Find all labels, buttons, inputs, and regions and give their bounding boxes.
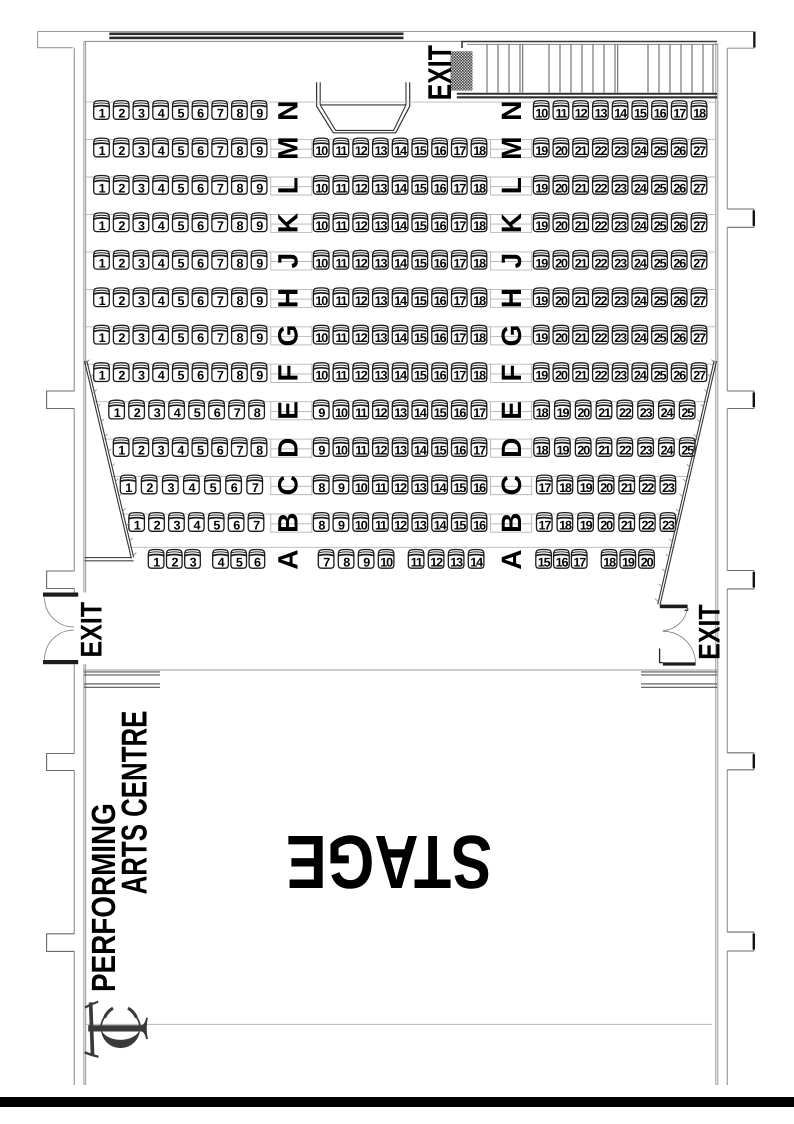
svg-text:18: 18 bbox=[603, 555, 616, 569]
svg-text:18: 18 bbox=[473, 294, 486, 308]
svg-text:14: 14 bbox=[394, 219, 407, 233]
svg-text:16: 16 bbox=[434, 331, 447, 345]
svg-text:17: 17 bbox=[473, 406, 486, 420]
svg-text:22: 22 bbox=[595, 219, 608, 233]
svg-text:E: E bbox=[496, 401, 527, 420]
svg-text:10: 10 bbox=[315, 331, 328, 345]
svg-text:15: 15 bbox=[414, 256, 427, 270]
svg-text:21: 21 bbox=[575, 369, 588, 383]
svg-text:C: C bbox=[496, 475, 527, 495]
svg-text:13: 13 bbox=[375, 256, 388, 270]
svg-text:12: 12 bbox=[430, 555, 443, 569]
svg-text:17: 17 bbox=[473, 444, 486, 458]
svg-text:L: L bbox=[273, 177, 304, 194]
svg-text:23: 23 bbox=[640, 406, 653, 420]
svg-text:12: 12 bbox=[355, 219, 368, 233]
svg-text:20: 20 bbox=[555, 256, 568, 270]
svg-text:17: 17 bbox=[453, 256, 466, 270]
svg-text:27: 27 bbox=[693, 331, 706, 345]
svg-text:21: 21 bbox=[575, 144, 588, 158]
svg-text:26: 26 bbox=[673, 181, 686, 195]
svg-text:12: 12 bbox=[575, 107, 588, 121]
svg-text:18: 18 bbox=[559, 481, 572, 495]
svg-text:L: L bbox=[496, 177, 527, 194]
svg-text:J: J bbox=[496, 253, 527, 269]
svg-text:26: 26 bbox=[673, 369, 686, 383]
svg-text:19: 19 bbox=[580, 481, 593, 495]
svg-text:24: 24 bbox=[634, 144, 647, 158]
svg-text:14: 14 bbox=[470, 555, 483, 569]
svg-text:15: 15 bbox=[414, 294, 427, 308]
svg-text:A: A bbox=[496, 550, 527, 570]
svg-text:16: 16 bbox=[654, 107, 667, 121]
svg-text:17: 17 bbox=[453, 219, 466, 233]
svg-text:13: 13 bbox=[375, 144, 388, 158]
svg-text:16: 16 bbox=[453, 406, 466, 420]
svg-text:11: 11 bbox=[335, 331, 347, 345]
svg-text:19: 19 bbox=[535, 294, 548, 308]
svg-text:10: 10 bbox=[335, 406, 348, 420]
svg-text:10: 10 bbox=[315, 219, 328, 233]
svg-text:18: 18 bbox=[473, 219, 486, 233]
svg-text:10: 10 bbox=[315, 369, 328, 383]
svg-text:22: 22 bbox=[619, 444, 632, 458]
svg-text:24: 24 bbox=[634, 256, 647, 270]
svg-text:15: 15 bbox=[414, 144, 427, 158]
svg-text:17: 17 bbox=[453, 294, 466, 308]
svg-text:M: M bbox=[273, 137, 304, 160]
svg-text:13: 13 bbox=[394, 406, 407, 420]
svg-text:18: 18 bbox=[473, 144, 486, 158]
svg-text:23: 23 bbox=[614, 181, 627, 195]
svg-text:16: 16 bbox=[556, 555, 569, 569]
svg-text:21: 21 bbox=[575, 331, 588, 345]
svg-text:22: 22 bbox=[595, 144, 608, 158]
svg-text:12: 12 bbox=[355, 144, 368, 158]
svg-text:24: 24 bbox=[634, 294, 647, 308]
svg-text:13: 13 bbox=[375, 331, 388, 345]
svg-text:19: 19 bbox=[557, 444, 570, 458]
svg-text:N: N bbox=[496, 101, 527, 121]
svg-text:B: B bbox=[496, 513, 527, 533]
svg-text:13: 13 bbox=[375, 294, 388, 308]
svg-text:12: 12 bbox=[375, 406, 388, 420]
svg-text:23: 23 bbox=[614, 331, 627, 345]
svg-text:19: 19 bbox=[535, 256, 548, 270]
svg-text:10: 10 bbox=[335, 444, 348, 458]
svg-text:10: 10 bbox=[535, 107, 548, 121]
svg-text:11: 11 bbox=[335, 294, 347, 308]
svg-text:F: F bbox=[496, 364, 527, 381]
svg-text:17: 17 bbox=[453, 181, 466, 195]
svg-text:G: G bbox=[496, 325, 527, 347]
svg-text:25: 25 bbox=[681, 406, 694, 420]
svg-text:11: 11 bbox=[411, 555, 423, 569]
svg-text:22: 22 bbox=[595, 256, 608, 270]
svg-text:15: 15 bbox=[453, 481, 466, 495]
svg-text:16: 16 bbox=[434, 294, 447, 308]
svg-text:15: 15 bbox=[538, 555, 551, 569]
svg-text:25: 25 bbox=[654, 219, 667, 233]
svg-text:20: 20 bbox=[555, 219, 568, 233]
svg-text:14: 14 bbox=[394, 144, 407, 158]
svg-text:11: 11 bbox=[355, 406, 367, 420]
svg-text:22: 22 bbox=[595, 294, 608, 308]
svg-text:14: 14 bbox=[414, 406, 427, 420]
svg-text:21: 21 bbox=[621, 519, 634, 533]
svg-text:26: 26 bbox=[673, 219, 686, 233]
svg-text:12: 12 bbox=[355, 331, 368, 345]
svg-text:STAGE: STAGE bbox=[286, 820, 492, 904]
svg-text:23: 23 bbox=[614, 256, 627, 270]
svg-text:17: 17 bbox=[538, 519, 551, 533]
svg-text:18: 18 bbox=[473, 331, 486, 345]
svg-text:13: 13 bbox=[595, 107, 608, 121]
svg-text:17: 17 bbox=[453, 369, 466, 383]
svg-text:12: 12 bbox=[375, 444, 388, 458]
svg-text:18: 18 bbox=[559, 519, 572, 533]
svg-text:20: 20 bbox=[577, 444, 590, 458]
svg-text:18: 18 bbox=[693, 107, 706, 121]
svg-text:23: 23 bbox=[614, 369, 627, 383]
svg-text:27: 27 bbox=[693, 369, 706, 383]
svg-text:15: 15 bbox=[634, 107, 647, 121]
svg-text:D: D bbox=[496, 438, 527, 458]
svg-text:11: 11 bbox=[335, 144, 347, 158]
svg-text:12: 12 bbox=[355, 294, 368, 308]
svg-text:10: 10 bbox=[380, 555, 393, 569]
svg-text:20: 20 bbox=[555, 369, 568, 383]
svg-text:24: 24 bbox=[634, 331, 647, 345]
svg-text:EXIT: EXIT bbox=[421, 45, 458, 100]
svg-text:17: 17 bbox=[453, 144, 466, 158]
svg-text:20: 20 bbox=[555, 331, 568, 345]
svg-text:16: 16 bbox=[473, 519, 486, 533]
svg-text:17: 17 bbox=[573, 555, 586, 569]
svg-text:15: 15 bbox=[414, 181, 427, 195]
svg-text:EXIT: EXIT bbox=[76, 602, 109, 658]
svg-text:24: 24 bbox=[661, 406, 674, 420]
svg-text:23: 23 bbox=[614, 294, 627, 308]
svg-text:14: 14 bbox=[394, 181, 407, 195]
svg-text:15: 15 bbox=[453, 519, 466, 533]
svg-text:18: 18 bbox=[473, 256, 486, 270]
svg-text:15: 15 bbox=[414, 369, 427, 383]
svg-text:23: 23 bbox=[662, 519, 675, 533]
svg-text:21: 21 bbox=[621, 481, 634, 495]
svg-text:E: E bbox=[273, 401, 304, 420]
svg-text:10: 10 bbox=[315, 256, 328, 270]
svg-text:19: 19 bbox=[622, 555, 635, 569]
svg-text:15: 15 bbox=[434, 406, 447, 420]
svg-text:11: 11 bbox=[555, 107, 567, 121]
svg-text:EXIT: EXIT bbox=[693, 604, 726, 659]
svg-text:11: 11 bbox=[375, 481, 387, 495]
svg-text:19: 19 bbox=[535, 369, 548, 383]
svg-text:24: 24 bbox=[634, 369, 647, 383]
svg-text:13: 13 bbox=[375, 369, 388, 383]
svg-text:H: H bbox=[496, 288, 527, 308]
svg-text:21: 21 bbox=[598, 444, 611, 458]
svg-text:19: 19 bbox=[557, 406, 570, 420]
svg-text:16: 16 bbox=[434, 181, 447, 195]
svg-text:C: C bbox=[273, 475, 304, 495]
svg-text:A: A bbox=[273, 550, 304, 570]
svg-text:11: 11 bbox=[375, 519, 387, 533]
svg-text:15: 15 bbox=[414, 331, 427, 345]
svg-text:18: 18 bbox=[473, 181, 486, 195]
svg-text:20: 20 bbox=[600, 481, 613, 495]
svg-text:18: 18 bbox=[473, 369, 486, 383]
svg-text:12: 12 bbox=[355, 369, 368, 383]
svg-text:25: 25 bbox=[654, 294, 667, 308]
svg-text:13: 13 bbox=[394, 444, 407, 458]
svg-text:D: D bbox=[273, 438, 304, 458]
svg-text:22: 22 bbox=[595, 181, 608, 195]
svg-text:12: 12 bbox=[355, 181, 368, 195]
svg-text:16: 16 bbox=[434, 369, 447, 383]
svg-text:27: 27 bbox=[693, 219, 706, 233]
svg-text:22: 22 bbox=[595, 331, 608, 345]
svg-text:21: 21 bbox=[575, 181, 588, 195]
svg-text:23: 23 bbox=[614, 219, 627, 233]
svg-text:23: 23 bbox=[614, 144, 627, 158]
svg-text:20: 20 bbox=[641, 555, 654, 569]
svg-text:25: 25 bbox=[654, 369, 667, 383]
svg-text:13: 13 bbox=[414, 519, 427, 533]
svg-text:10: 10 bbox=[315, 144, 328, 158]
svg-text:26: 26 bbox=[673, 331, 686, 345]
svg-text:H: H bbox=[273, 288, 304, 308]
svg-text:22: 22 bbox=[641, 481, 654, 495]
svg-text:16: 16 bbox=[453, 444, 466, 458]
svg-text:11: 11 bbox=[335, 369, 347, 383]
svg-text:17: 17 bbox=[538, 481, 551, 495]
svg-text:17: 17 bbox=[453, 331, 466, 345]
svg-text:19: 19 bbox=[535, 181, 548, 195]
svg-text:12: 12 bbox=[394, 481, 407, 495]
svg-text:10: 10 bbox=[315, 294, 328, 308]
svg-text:12: 12 bbox=[394, 519, 407, 533]
svg-text:21: 21 bbox=[598, 406, 611, 420]
svg-text:14: 14 bbox=[414, 444, 427, 458]
svg-text:21: 21 bbox=[575, 219, 588, 233]
svg-text:18: 18 bbox=[536, 406, 549, 420]
svg-text:19: 19 bbox=[580, 519, 593, 533]
svg-text:15: 15 bbox=[434, 444, 447, 458]
svg-text:J: J bbox=[273, 253, 304, 269]
svg-text:21: 21 bbox=[575, 256, 588, 270]
svg-text:16: 16 bbox=[434, 219, 447, 233]
svg-text:10: 10 bbox=[315, 181, 328, 195]
svg-text:19: 19 bbox=[535, 219, 548, 233]
svg-text:14: 14 bbox=[434, 519, 447, 533]
svg-text:F: F bbox=[273, 364, 304, 381]
svg-text:26: 26 bbox=[673, 294, 686, 308]
svg-text:13: 13 bbox=[375, 181, 388, 195]
svg-text:21: 21 bbox=[575, 294, 588, 308]
svg-text:22: 22 bbox=[641, 519, 654, 533]
svg-text:11: 11 bbox=[335, 256, 347, 270]
svg-text:16: 16 bbox=[473, 481, 486, 495]
svg-text:15: 15 bbox=[414, 219, 427, 233]
svg-text:24: 24 bbox=[661, 444, 674, 458]
svg-text:14: 14 bbox=[394, 294, 407, 308]
svg-text:11: 11 bbox=[355, 444, 367, 458]
svg-text:25: 25 bbox=[654, 256, 667, 270]
svg-text:12: 12 bbox=[355, 256, 368, 270]
svg-text:19: 19 bbox=[535, 331, 548, 345]
svg-text:26: 26 bbox=[673, 256, 686, 270]
svg-text:K: K bbox=[496, 213, 527, 233]
svg-text:19: 19 bbox=[535, 144, 548, 158]
svg-text:14: 14 bbox=[614, 107, 627, 121]
svg-text:22: 22 bbox=[619, 406, 632, 420]
svg-text:K: K bbox=[273, 213, 304, 233]
svg-text:23: 23 bbox=[662, 481, 675, 495]
svg-text:20: 20 bbox=[600, 519, 613, 533]
svg-text:ARTS CENTRE: ARTS CENTRE bbox=[113, 711, 154, 895]
svg-text:14: 14 bbox=[394, 369, 407, 383]
svg-text:27: 27 bbox=[693, 256, 706, 270]
svg-text:24: 24 bbox=[634, 181, 647, 195]
svg-text:25: 25 bbox=[654, 331, 667, 345]
svg-text:24: 24 bbox=[634, 219, 647, 233]
svg-text:17: 17 bbox=[673, 107, 686, 121]
svg-text:18: 18 bbox=[536, 444, 549, 458]
svg-text:10: 10 bbox=[355, 519, 368, 533]
svg-text:M: M bbox=[496, 137, 527, 160]
svg-text:11: 11 bbox=[335, 219, 347, 233]
svg-text:27: 27 bbox=[693, 181, 706, 195]
svg-text:27: 27 bbox=[693, 294, 706, 308]
svg-text:16: 16 bbox=[434, 144, 447, 158]
svg-text:22: 22 bbox=[595, 369, 608, 383]
svg-text:25: 25 bbox=[654, 181, 667, 195]
svg-text:26: 26 bbox=[673, 144, 686, 158]
svg-text:20: 20 bbox=[555, 181, 568, 195]
svg-text:11: 11 bbox=[335, 181, 347, 195]
svg-text:23: 23 bbox=[640, 444, 653, 458]
svg-text:13: 13 bbox=[414, 481, 427, 495]
svg-text:20: 20 bbox=[555, 294, 568, 308]
svg-text:20: 20 bbox=[555, 144, 568, 158]
svg-text:20: 20 bbox=[577, 406, 590, 420]
svg-text:25: 25 bbox=[654, 144, 667, 158]
svg-text:G: G bbox=[273, 325, 304, 347]
svg-text:27: 27 bbox=[693, 144, 706, 158]
svg-text:13: 13 bbox=[450, 555, 463, 569]
svg-text:10: 10 bbox=[355, 481, 368, 495]
svg-text:16: 16 bbox=[434, 256, 447, 270]
svg-text:B: B bbox=[273, 513, 304, 533]
svg-text:14: 14 bbox=[394, 331, 407, 345]
svg-text:N: N bbox=[273, 101, 304, 121]
svg-text:14: 14 bbox=[434, 481, 447, 495]
svg-text:13: 13 bbox=[375, 219, 388, 233]
svg-text:14: 14 bbox=[394, 256, 407, 270]
